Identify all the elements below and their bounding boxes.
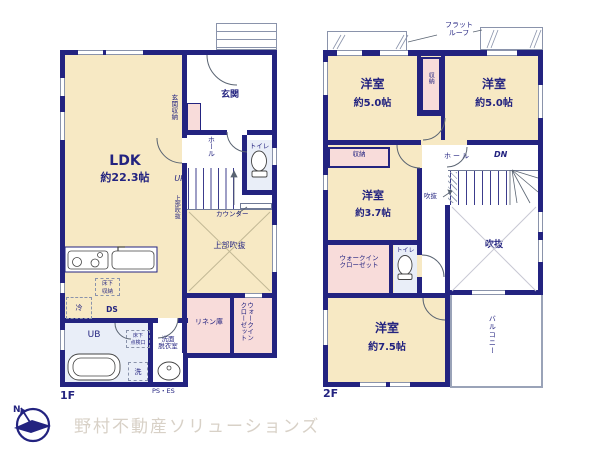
ps-es-label: PS・ES [152,388,175,395]
window [360,382,386,387]
bedroom-nw-size: 約5.0帖 [335,98,410,110]
wall [389,245,393,293]
fridge-box: 冷 [66,297,92,319]
window [60,112,65,140]
window [106,50,143,55]
stair-treads-2f [450,170,510,205]
bedroom-w-size: 約3.7帖 [338,209,408,220]
wall [230,298,234,353]
bedroom-ne-size: 約5.0帖 [455,98,533,110]
closet-mid-label: 収納 [427,72,433,96]
bedroom-w-name: 洋室 [338,190,408,203]
wall [418,112,445,116]
wall [445,205,450,293]
floor-storage-l2: 収納 [102,289,113,295]
hall-1f-label: ホール [207,136,214,164]
dn-label: DN [494,150,507,159]
ub-label: UB [78,330,110,340]
wall [323,382,450,387]
ldk-size: 約22.3帖 [75,172,175,185]
window [272,225,277,272]
wall [417,168,422,240]
wic-2f-label: ウォークインクローゼット [330,255,388,270]
entrance-porch-steps [216,23,277,50]
closet-west-label: 収納 [338,151,380,158]
window [323,310,328,345]
wall [467,140,538,145]
counter-label: カウンター [216,211,261,218]
floor-storage-l1: 床下 [102,281,113,287]
toilet-1f-label: トイレ [247,143,272,150]
washroom-label: 洗面脱衣室 [151,336,185,351]
wall [183,353,277,358]
window [337,50,362,56]
room-washroom [153,323,183,382]
window [245,293,262,298]
brand-logo-text: 野村不動産ソリューションズ [74,412,320,437]
room-bedroom-south [328,298,445,382]
wall [441,55,445,140]
floor2-label: 2F [323,388,338,401]
wall [417,245,422,255]
compass-icon: N [13,405,51,441]
window [380,50,408,56]
bedroom-nw-name: 洋室 [335,78,410,92]
compass-bird [14,420,51,433]
void-side-label: 上部吹抜 [173,195,179,231]
void-above-1f [187,210,272,293]
wic-2f-l2: クローゼット [340,261,379,269]
genkan-label: 玄関 [208,90,252,100]
window [538,240,543,262]
hall-2f-label: ホール [444,152,471,160]
flat-roof-label: フラットルーフ [440,21,478,37]
wall [417,55,421,116]
window [323,62,328,95]
wall [323,293,450,298]
bedroom-ne-name: 洋室 [455,78,533,92]
wall [323,240,422,245]
floor-plan: LDK 約22.3帖 玄関 玄関収納 ホール トイレ UP 上部吹抜 カウンター… [0,0,600,450]
washer-box: 洗 [128,362,148,381]
bedroom-s-size: 約7.5帖 [352,342,422,354]
wall [187,130,227,135]
wall [183,358,188,387]
genkan-storage-closet [187,103,201,132]
window [60,330,65,350]
floor-storage-box: 床下収納 [95,278,120,296]
fridge-label: 冷 [76,303,83,313]
wall [242,190,277,195]
window [472,290,505,295]
flat-roof-l1: フラット [445,21,473,29]
wall [272,50,277,358]
balcony-label: バルコニー [488,315,495,370]
balcony [450,295,543,388]
hatch-l1: 床下 [133,333,143,339]
window [272,148,277,165]
corridor-2f [422,205,445,293]
hatch-box: 床下点検口 [126,330,150,348]
up-label: UP [167,174,185,183]
ds-label: DS [96,306,128,315]
void-1f-label: 上部吹抜 [192,241,267,250]
wall [417,277,422,293]
window [538,85,543,118]
stair-treads-1f [188,168,240,209]
wall [247,130,277,135]
washroom-l2: 脱衣室 [158,342,178,350]
washer-label: 洗 [135,367,142,377]
floor1-label: 1F [60,390,75,403]
hatch-l2: 点検口 [130,340,145,346]
wall [328,140,421,145]
window [60,78,65,96]
toilet-2f-label: トイレ [394,248,417,255]
flat-roof-right [480,27,543,50]
window [487,50,517,56]
window [390,382,410,387]
flat-roof-left [327,31,407,52]
void-slit-2f [448,172,457,203]
flat-roof-l2: ルーフ [449,29,470,37]
wic-1f-l2: クローゼット [239,302,246,350]
window [323,175,328,190]
compass-n-label: N [13,405,21,415]
void-2f-label: 吹抜 [474,240,514,250]
window [538,212,543,232]
room-ldk [65,55,182,318]
linen-label: リネン庫 [188,318,230,326]
bedroom-s-name: 洋室 [352,322,422,336]
wall [182,163,187,353]
window [78,50,103,55]
wic-1f-label: ウォークインクローゼット [239,302,253,350]
void-small-label: 吹抜 [424,193,437,200]
window [60,283,65,293]
wall [178,318,188,323]
stair-edge-line [448,170,538,171]
genkan-storage-label: 玄関収納 [170,94,177,132]
wall [445,298,450,387]
ldk-name: LDK [75,153,175,169]
wall [182,55,187,138]
